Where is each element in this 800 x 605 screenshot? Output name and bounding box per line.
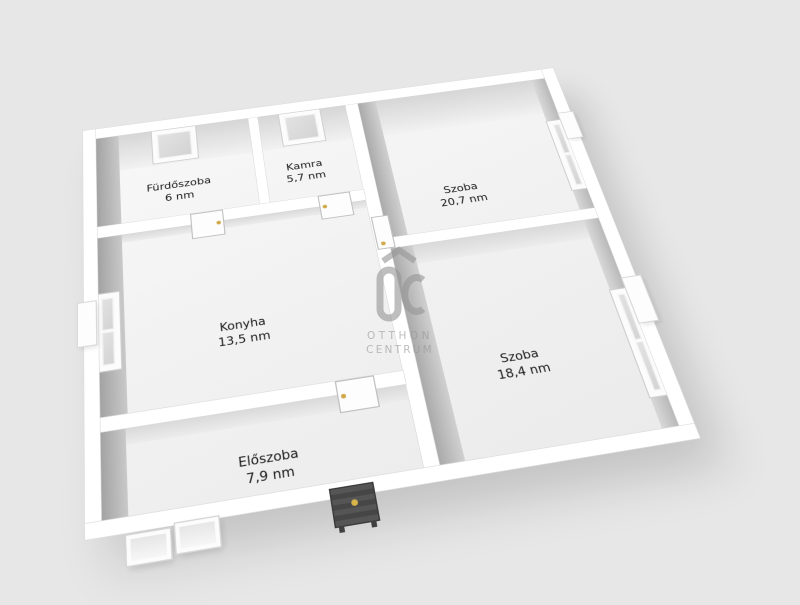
window-pane — [285, 114, 320, 141]
kitchen-window-sill — [78, 301, 96, 347]
otthon-centrum-logo-icon — [372, 246, 428, 322]
bathroom-window — [152, 126, 198, 164]
pantry-window — [279, 109, 325, 145]
entrance-door-leg — [339, 525, 345, 533]
entrance-door-leg — [371, 520, 378, 528]
watermark-line1: OTTHON — [348, 330, 452, 342]
exterior-window-box — [175, 517, 221, 554]
hall-west-wall-face — [100, 428, 128, 521]
window-box-inner — [130, 533, 167, 561]
window-pane — [157, 131, 192, 159]
kitchen-window — [96, 292, 122, 372]
otthon-centrum-watermark: OTTHON CENTRUM — [348, 246, 452, 356]
bathroom-door — [190, 209, 226, 239]
bathroom-west-wall-face — [96, 136, 122, 228]
exterior-window-box — [126, 529, 171, 566]
watermark-line2: CENTRUM — [348, 344, 452, 356]
window-pane — [101, 298, 114, 331]
floorplan-canvas: Fürdőszoba 6 nm Kamra 5,7 nm Szoba 20,7 … — [0, 0, 800, 605]
window-pane — [102, 331, 115, 366]
window-box-inner — [179, 521, 216, 548]
